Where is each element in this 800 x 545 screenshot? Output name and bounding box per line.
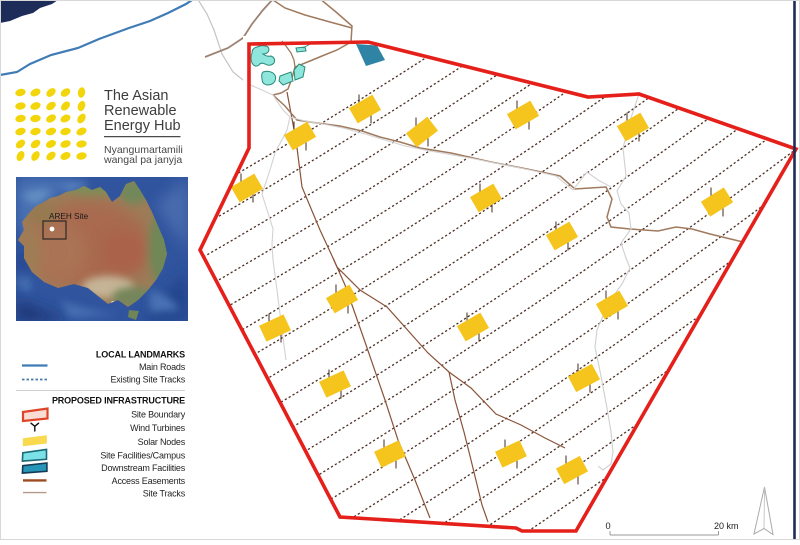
svg-text:Existing Site Tracks: Existing Site Tracks bbox=[110, 374, 185, 384]
svg-text:Site Tracks: Site Tracks bbox=[143, 488, 186, 498]
svg-text:Solar Nodes: Solar Nodes bbox=[138, 437, 186, 447]
svg-text:LOCAL LANDMARKS: LOCAL LANDMARKS bbox=[96, 349, 185, 359]
svg-text:AREH Site: AREH Site bbox=[49, 212, 89, 221]
svg-text:The Asian: The Asian bbox=[104, 88, 169, 104]
svg-text:Site Boundary: Site Boundary bbox=[131, 409, 186, 419]
svg-text:PROPOSED INFRASTRUCTURE: PROPOSED INFRASTRUCTURE bbox=[52, 396, 185, 406]
svg-text:Main Roads: Main Roads bbox=[139, 362, 186, 372]
svg-text:0: 0 bbox=[605, 521, 610, 531]
svg-text:Access Easements: Access Easements bbox=[112, 476, 186, 486]
svg-text:Downstream Facilities: Downstream Facilities bbox=[101, 463, 186, 473]
svg-text:wangal pa janyja: wangal pa janyja bbox=[103, 154, 182, 166]
svg-text:Energy Hub: Energy Hub bbox=[104, 118, 181, 134]
svg-text:20 km: 20 km bbox=[714, 521, 739, 531]
svg-text:Renewable: Renewable bbox=[104, 103, 177, 119]
svg-text:Site Facilities/Campus: Site Facilities/Campus bbox=[100, 450, 185, 460]
svg-text:Wind Turbines: Wind Turbines bbox=[130, 423, 186, 433]
